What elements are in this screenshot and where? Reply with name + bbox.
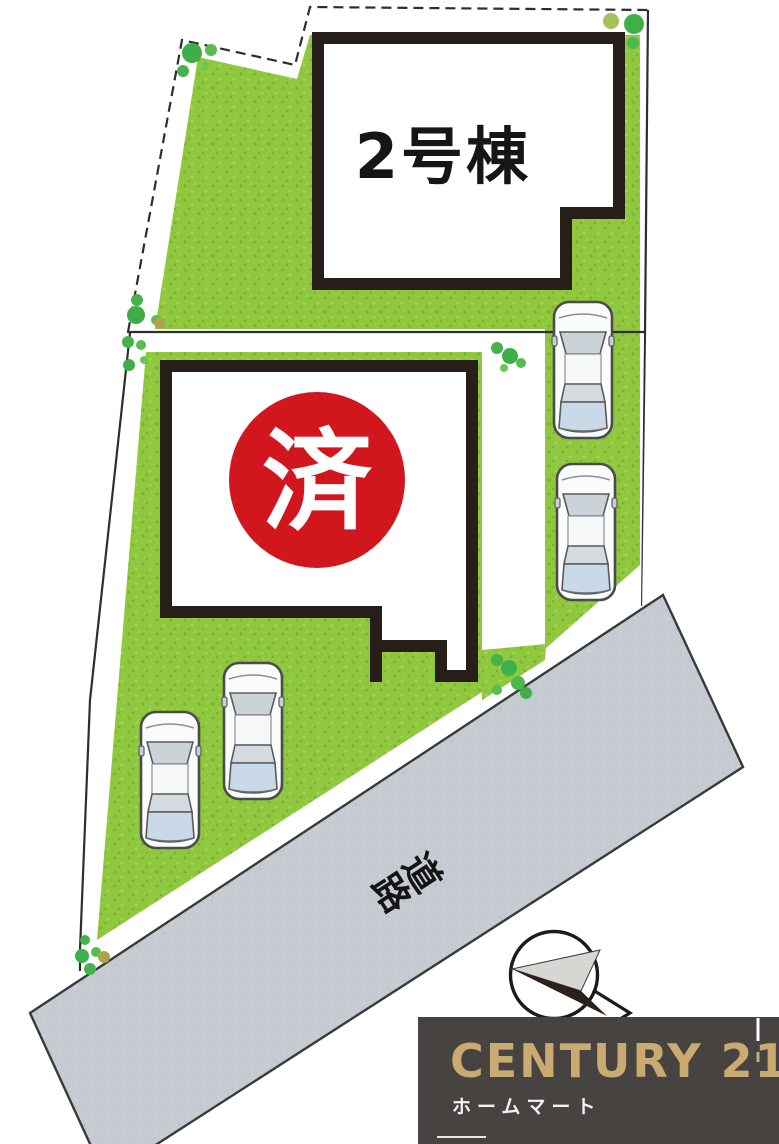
car-right-top [552, 302, 614, 438]
car-left-upper [222, 663, 284, 799]
logo-brand-text: CENTURY 21 [450, 1034, 779, 1088]
brand-logo: CENTURY 21 ホームマート [418, 1017, 779, 1144]
sold-badge-label: 済 [262, 418, 373, 546]
logo-subtitle-text: ホームマート [452, 1096, 601, 1118]
building-2-label: 2号棟 [355, 120, 531, 193]
car-right-bottom [555, 464, 617, 600]
car-left-lower [139, 712, 201, 848]
site-plan-canvas: 道 路 2号棟 済 [0, 0, 779, 1144]
sold-badge: 済 [229, 392, 405, 568]
site-plan-svg: 道 路 2号棟 済 [0, 0, 779, 1144]
compass-north-arrow [511, 932, 631, 1032]
